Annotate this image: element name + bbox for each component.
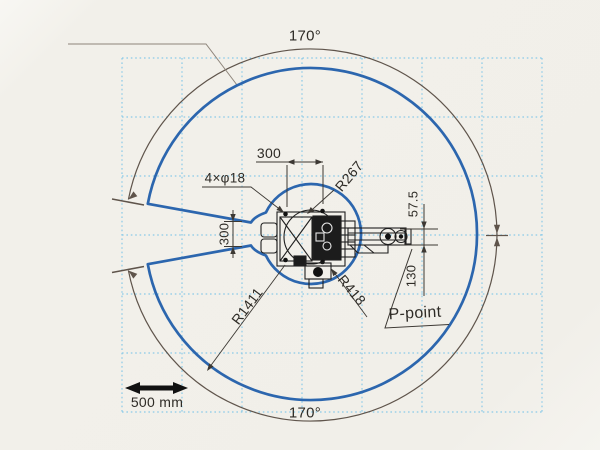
robot-working-range-diagram: 170° 170° 300 4×φ18 R267 R418 R1411 57.5… bbox=[0, 0, 600, 450]
envelope-leader-line bbox=[68, 44, 237, 85]
offset-upper-label: 57.5 bbox=[407, 191, 420, 218]
scale-bar-label: 500 mm bbox=[131, 395, 183, 409]
angle-top-label: 170° bbox=[289, 29, 321, 44]
slot-width-label: 300 bbox=[218, 223, 231, 246]
offset-lower-label: 130 bbox=[405, 265, 418, 288]
bolt-holes-label: 4×φ18 bbox=[205, 171, 246, 185]
angle-bottom-label: 170° bbox=[289, 406, 321, 421]
p-point-label: P-point bbox=[388, 305, 442, 324]
diagram-canvas bbox=[0, 0, 600, 450]
scale-bar bbox=[125, 382, 188, 394]
mount-pitch-label: 300 bbox=[257, 146, 281, 160]
